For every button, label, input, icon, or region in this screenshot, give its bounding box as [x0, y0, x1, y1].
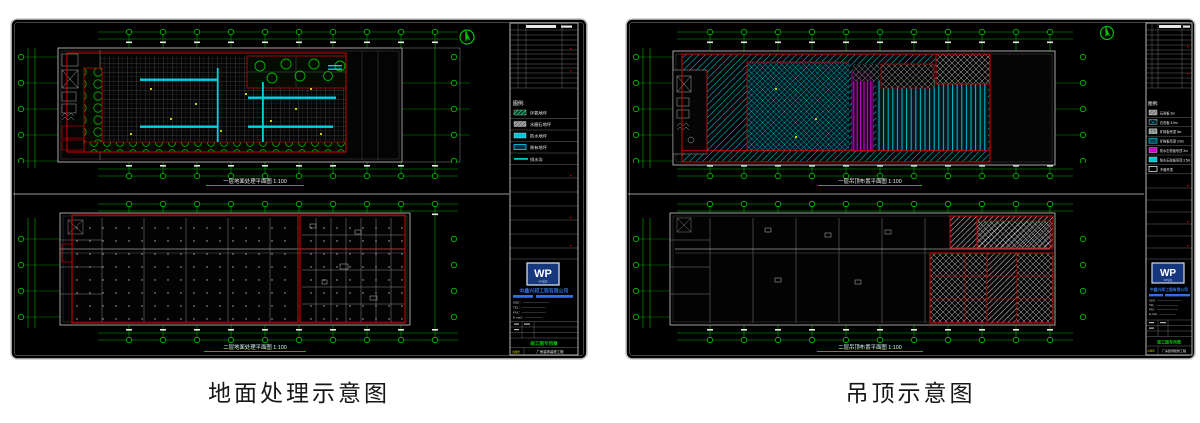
crosshatch-ceiling-zone	[747, 62, 849, 151]
svg-text:环氧地坪: 环氧地坪	[530, 110, 547, 117]
stamp-row: 竣工图专用章	[1157, 339, 1181, 345]
svg-text:排水沟: 排水沟	[530, 156, 543, 163]
plate-label: 出图章	[512, 350, 520, 354]
magenta-ceiling-strip	[852, 72, 873, 151]
svg-text:E-mail：——————: E-mail：——————	[1149, 312, 1176, 316]
ceiling-cad-sheet: 一层吊顶布置平面图 1:100	[625, 18, 1196, 360]
striped-ceiling-zone	[876, 80, 988, 151]
first-floor-plan: 一层地面处理平面图 1:100	[17, 28, 474, 186]
ceiling-drawing-panel: 一层吊顶布置平面图 1:100	[625, 18, 1196, 360]
svg-text:E-mail：——————: E-mail：——————	[513, 316, 543, 320]
legend-title: 图例:	[1148, 100, 1158, 107]
svg-text:ADD：—————————: ADD：—————————	[1149, 299, 1182, 303]
magenta-solid-swatch	[1149, 148, 1157, 153]
svg-text:WP: WP	[534, 268, 552, 280]
plan-title: 一层吊顶布置平面图 1:100	[838, 177, 902, 185]
svg-text:FAX：————————: FAX：————————	[1149, 308, 1179, 312]
plan-title: 二层地面处理平面图 1:100	[223, 343, 287, 351]
cyan-solid-swatch	[1149, 157, 1157, 162]
gray-hatch-swatch	[514, 122, 526, 127]
teal-outline-swatch	[514, 145, 526, 150]
ceiling-hatch-rooms-lower	[930, 253, 1053, 323]
svg-text:矿棉板吊顶 3.5m: 矿棉板吊顶 3.5m	[1160, 139, 1184, 144]
caption-ceiling: 吊顶示意图	[625, 374, 1196, 408]
svg-text:ADD：—————————: ADD：—————————	[513, 301, 549, 305]
dotted-floor	[65, 218, 405, 320]
first-floor-ceiling-plan: 一层吊顶布置平面图 1:100	[632, 25, 1114, 186]
project-name: 厂房装饰装修工程	[536, 349, 564, 354]
plate-label: 出图章	[1148, 349, 1156, 353]
caption-floor-treatment: 地面处理示意图	[10, 374, 588, 408]
svg-text:WP装饰: WP装饰	[538, 280, 548, 284]
project-name: 厂房装饰装修工程	[1162, 348, 1186, 353]
ceiling-hatch-rooms-upper	[950, 216, 1053, 248]
plan-title: 二层吊顶布置平面图 1:100	[838, 343, 902, 351]
stamp-row: 竣工图专用章	[530, 340, 558, 347]
svg-text:水磨石地坪: 水磨石地坪	[530, 121, 551, 128]
wp-logo: WP WP装饰	[527, 263, 559, 285]
company-name: 中鑫兴邦工程有限公司	[520, 288, 569, 295]
page: 一层地面处理平面图 1:100	[0, 0, 1200, 423]
light-hatch-swatch	[1149, 110, 1157, 115]
wp-logo: WP WP装饰	[1152, 263, 1184, 283]
legend-title: 图例:	[513, 100, 524, 107]
svg-text:WP: WP	[1160, 268, 1176, 279]
planting-strip-bottom	[84, 142, 346, 152]
svg-text:FAX：————————: FAX：————————	[513, 311, 546, 315]
svg-text:原有地坪: 原有地坪	[530, 144, 547, 151]
cyan-solid-swatch	[514, 133, 526, 138]
svg-text:石膏板 3m: 石膏板 3m	[1160, 110, 1175, 115]
second-floor-ceiling-plan: 二层吊顶布置平面图 1:100	[632, 200, 1087, 352]
svg-text:矿棉板吊顶 3m: 矿棉板吊顶 3m	[1160, 129, 1182, 134]
svg-text:防水石膏板吊顶 3.5m: 防水石膏板吊顶 3.5m	[1160, 157, 1191, 162]
titleblock-right: 图例: 石膏板 3m 石膏板 3.9m 矿棉板吊顶 3m 矿棉板吊顶 3.5m …	[1146, 23, 1192, 355]
svg-text:防水石膏板吊顶 3m: 防水石膏板吊顶 3m	[1160, 148, 1188, 153]
svg-text:防水地坪: 防水地坪	[530, 133, 547, 140]
floor-treatment-drawing-panel: 一层地面处理平面图 1:100	[10, 18, 588, 360]
planting-strip-left	[84, 68, 102, 144]
gray-dot-swatch	[1149, 129, 1157, 134]
white-outline-swatch	[1149, 166, 1157, 171]
svg-text:WP装饰: WP装饰	[1164, 278, 1173, 282]
plan-title: 一层地面处理平面图 1:100	[223, 177, 287, 185]
svg-text:TEL：————————: TEL：————————	[513, 306, 546, 310]
svg-text:TEL：————————: TEL：————————	[1149, 303, 1178, 307]
company-name: 中鑫兴邦工程有限公司	[1150, 287, 1188, 292]
svg-text:不做吊顶: 不做吊顶	[1160, 167, 1174, 172]
titleblock-left: 图例: 环氧地坪 水磨石地坪 防水地坪 原有地坪 排水沟 WP WP装饰 中鑫兴	[510, 23, 578, 355]
cyan-crosshatch-swatch	[1149, 119, 1157, 124]
green-hatch-swatch	[514, 110, 526, 115]
teal-solid-swatch	[1149, 138, 1157, 143]
floor-treatment-cad-sheet: 一层地面处理平面图 1:100	[10, 18, 588, 360]
svg-text:石膏板 3.9m: 石膏板 3.9m	[1160, 120, 1178, 125]
stair-core	[673, 70, 707, 154]
cyan-line-swatch	[514, 158, 528, 160]
